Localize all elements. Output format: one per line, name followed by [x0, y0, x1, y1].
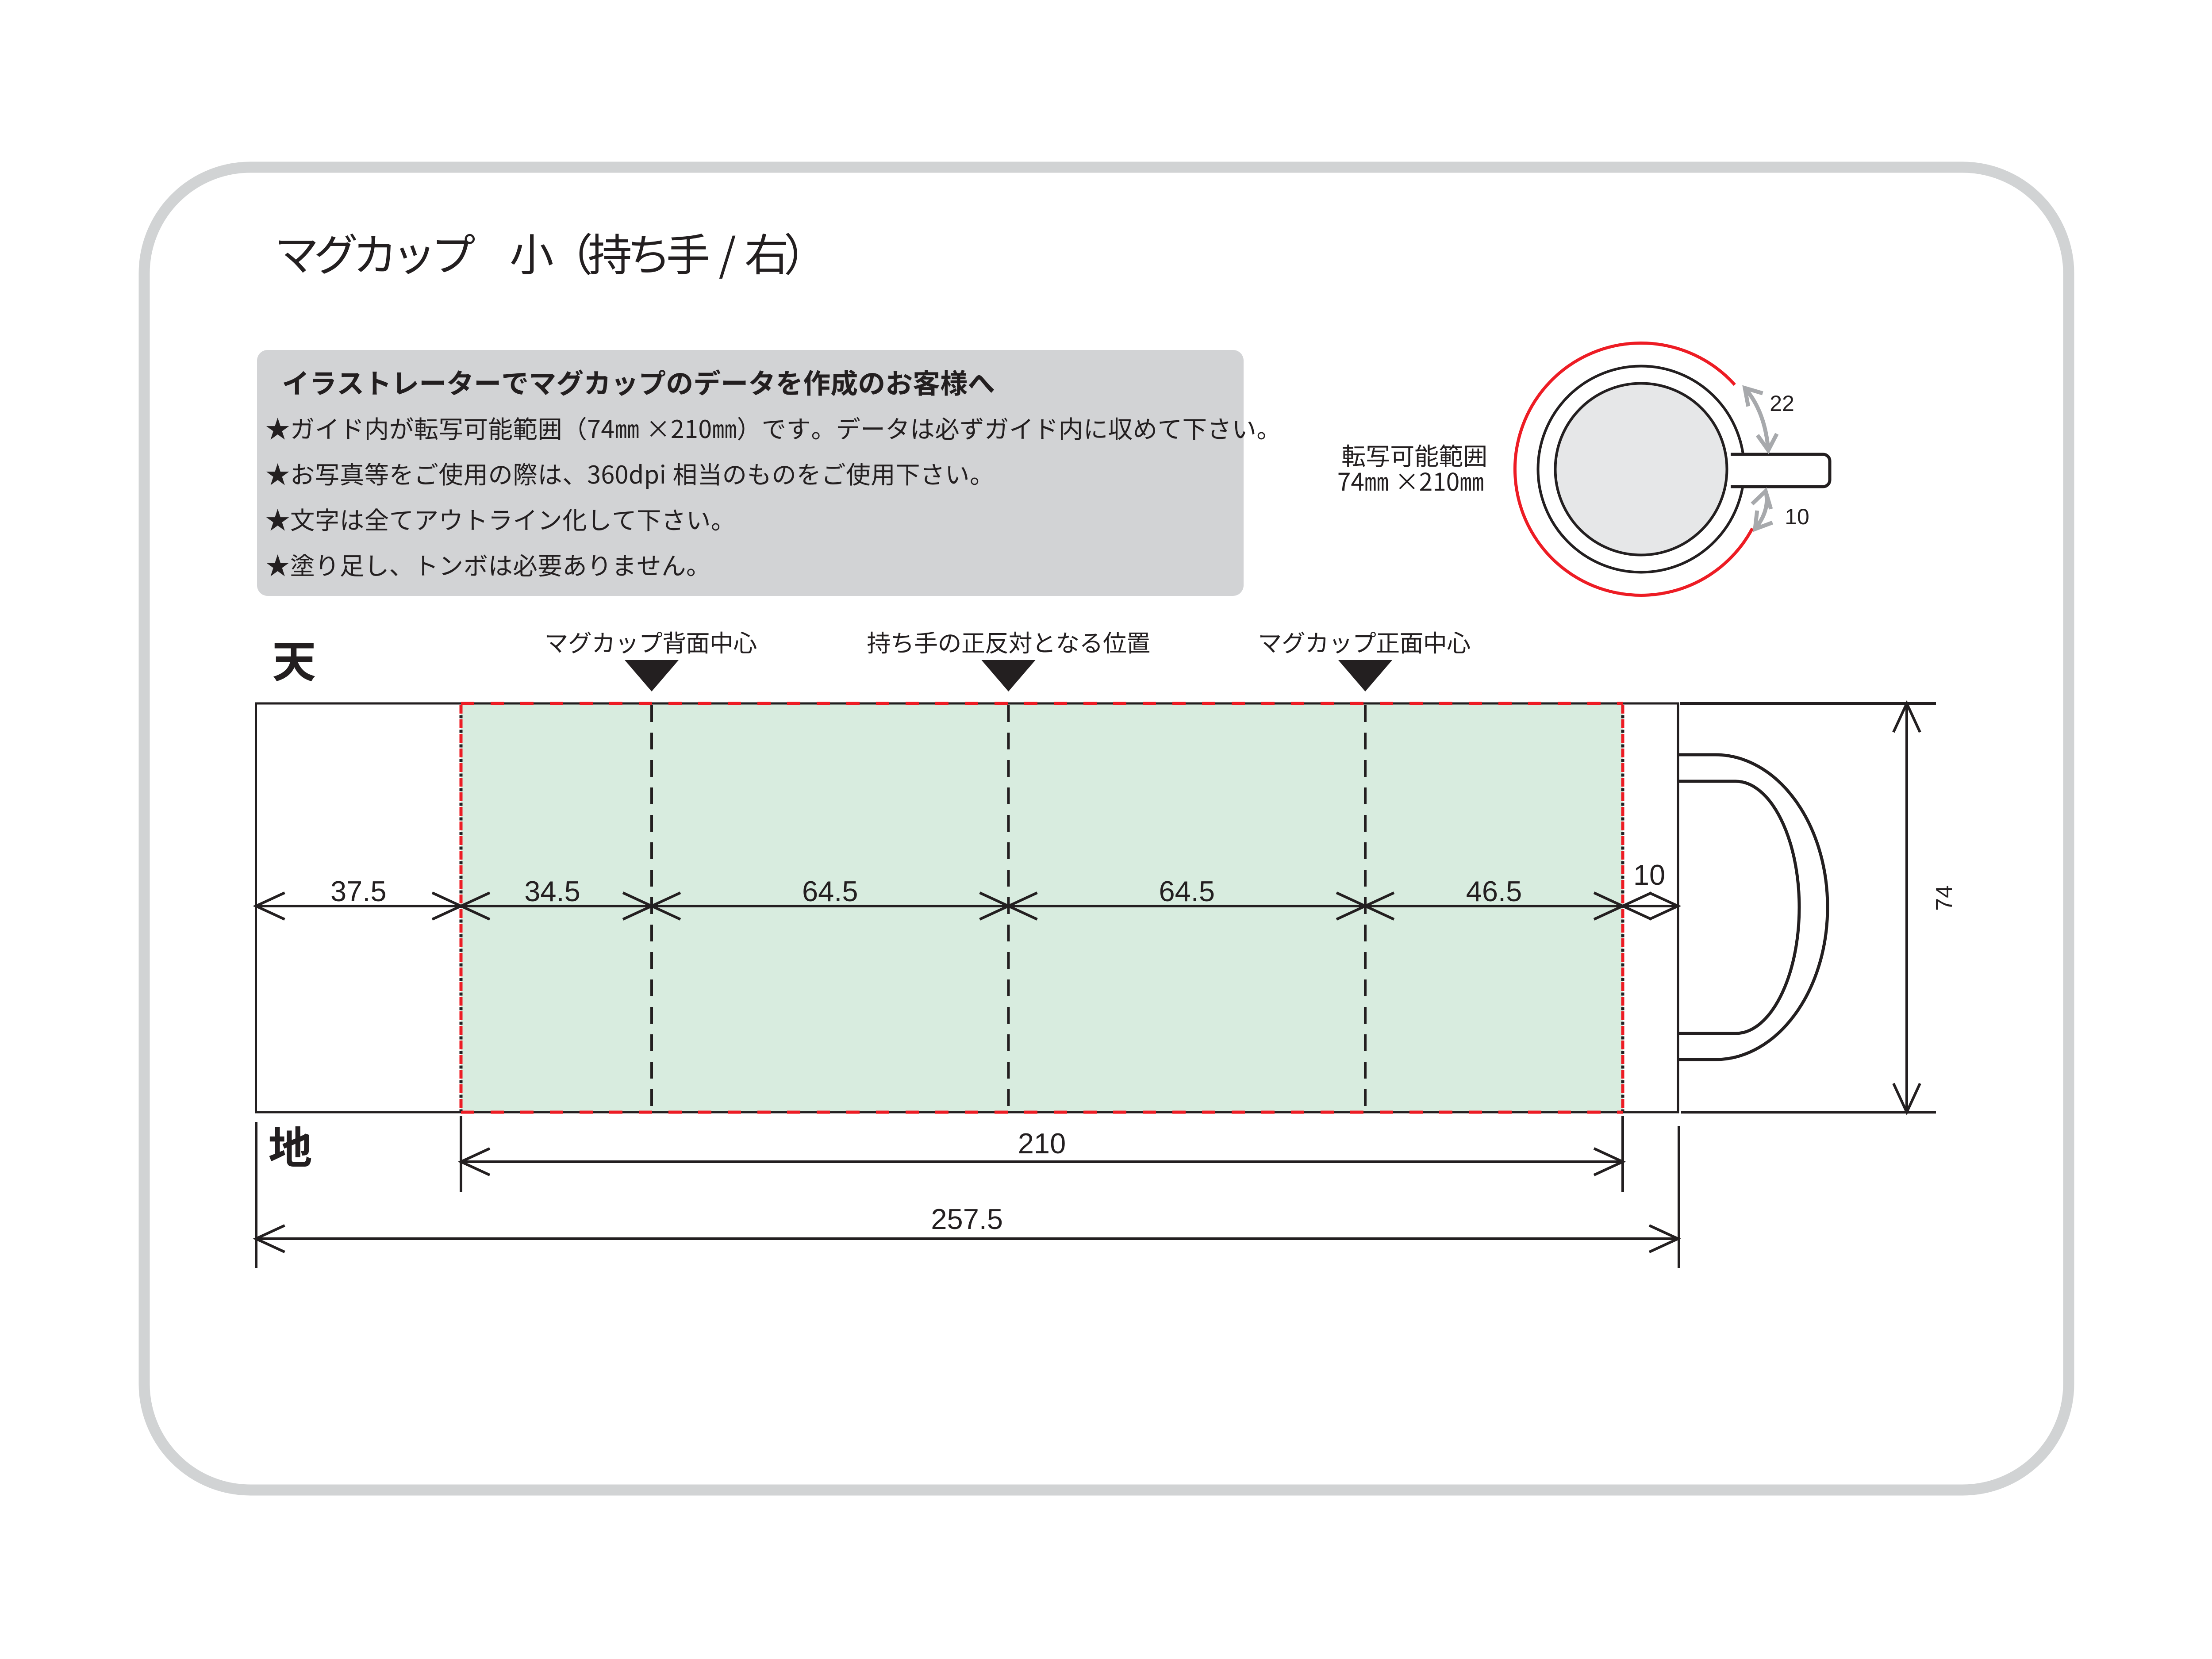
svg-text:34.5: 34.5 — [524, 875, 580, 907]
svg-text:37.5: 37.5 — [330, 875, 387, 907]
svg-text:64.5: 64.5 — [1159, 875, 1215, 907]
svg-text:10: 10 — [1633, 859, 1665, 891]
svg-text:257.5: 257.5 — [931, 1203, 1003, 1235]
svg-text:74: 74 — [1932, 885, 1957, 911]
svg-text:22: 22 — [1770, 391, 1794, 416]
svg-text:46.5: 46.5 — [1466, 875, 1522, 907]
svg-text:64.5: 64.5 — [802, 875, 858, 907]
svg-text:210: 210 — [1018, 1127, 1066, 1160]
svg-text:10: 10 — [1785, 504, 1809, 529]
